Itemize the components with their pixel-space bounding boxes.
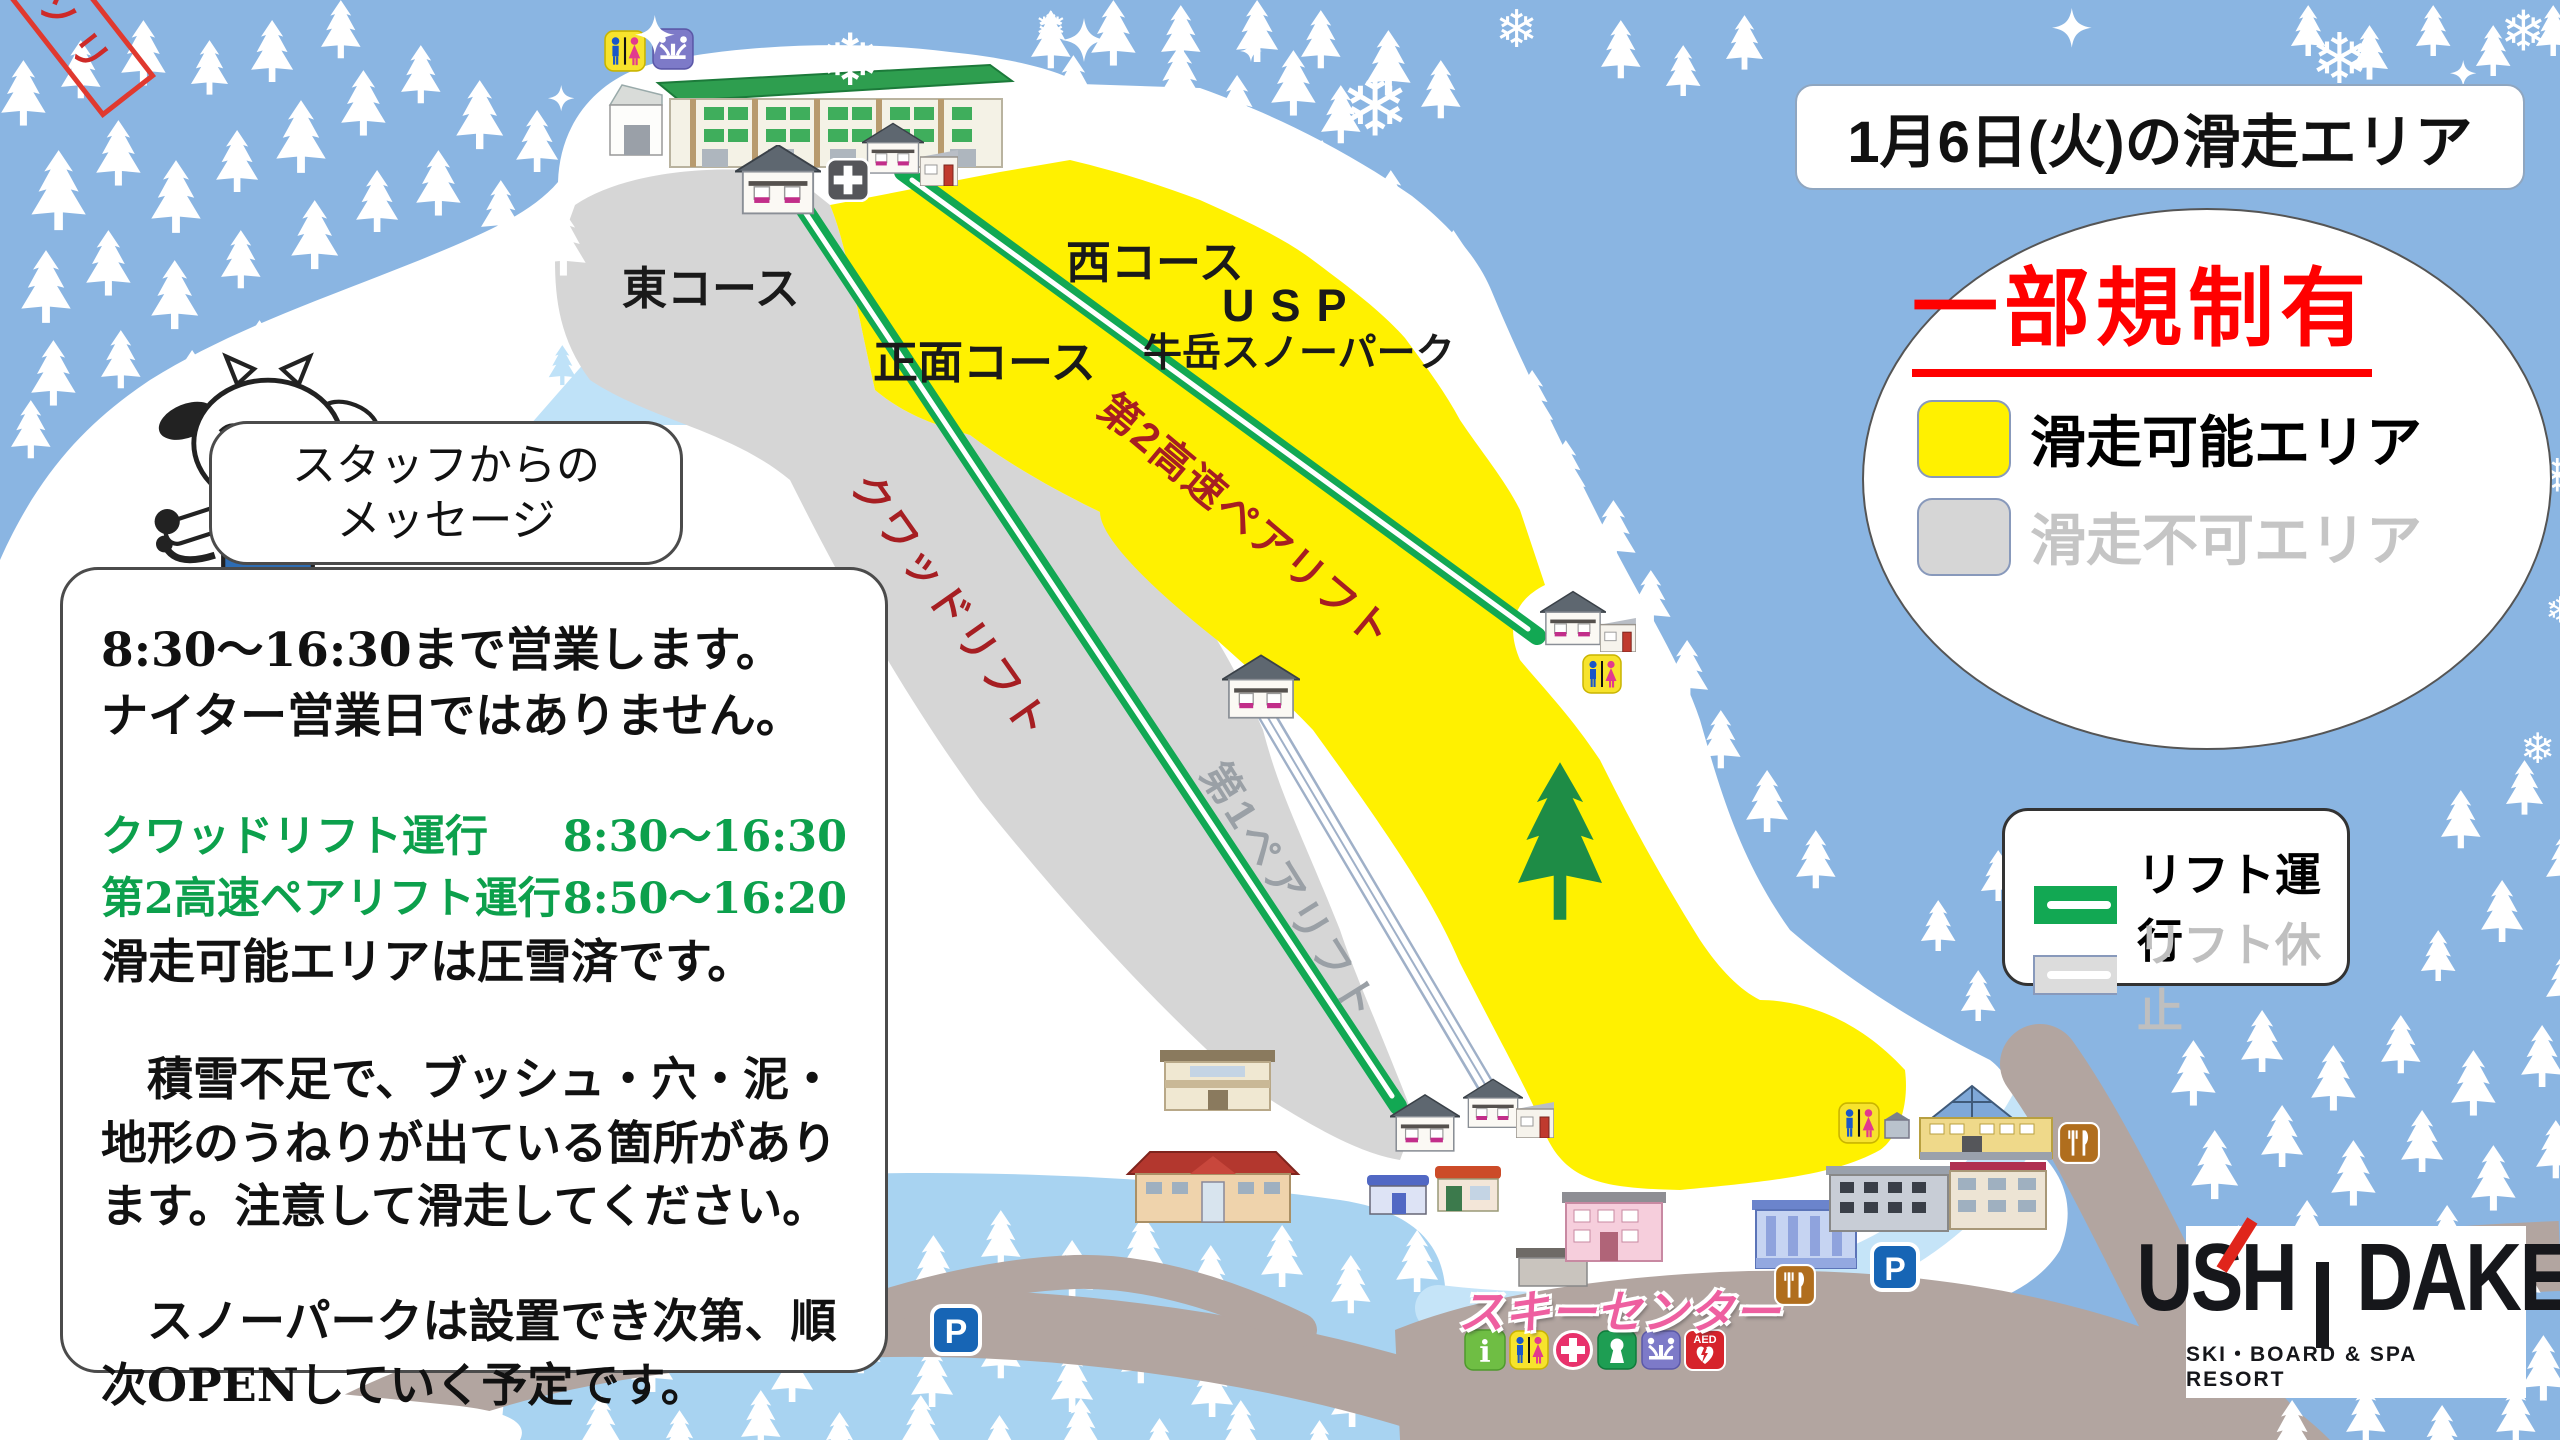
course-label-east: 東コース [622, 252, 800, 317]
resort-logo: USH DAKE SKI・BOARD & SPA RESORT [2186, 1226, 2526, 1398]
svg-text:❄: ❄ [2520, 724, 2555, 773]
staff-bubble-line2: メッセージ [336, 493, 555, 548]
logo-text-right: DAKE [2357, 1232, 2560, 1323]
staff-bubble-line1: スタッフからの [292, 438, 600, 493]
course-label-front: 正面コース [873, 326, 1096, 391]
svg-text:❄: ❄ [2500, 0, 2547, 64]
svg-text:❄: ❄ [1035, 4, 1067, 48]
svg-text:❄: ❄ [2545, 590, 2560, 631]
pair2-hours-name: 第2高速ペアリフト運行 [101, 868, 561, 930]
parking-badge: P [1872, 1244, 1918, 1290]
course-label-west: 西コース [1066, 226, 1244, 291]
lift-stop-label: リフト休止 [2137, 909, 2347, 1041]
hours-line: 8:30〜16:30まで営業します。 [101, 618, 847, 684]
status-heading: 一部規制有 [1912, 238, 2372, 377]
svg-text:P: P [945, 1313, 968, 1351]
restaurant-icon [1775, 1265, 1815, 1305]
logo-i-bar [2316, 1262, 2329, 1348]
status-legend-circle: 一部規制有 滑走可能エリア 滑走不可エリア [1862, 208, 2552, 750]
restaurant-icon [2059, 1123, 2099, 1163]
parking-badge: P [932, 1306, 980, 1354]
lift-legend-box: リフト運行 リフト休止 [2002, 808, 2350, 986]
quad-hours-name: クワッドリフト運行 [101, 806, 488, 868]
snowpark-paragraph: スノーパークは設置でき次第、順次OPENしていく予定です。 [101, 1290, 847, 1417]
closed-area-swatch [1916, 497, 2012, 577]
groomed-note: 滑走可能エリアは圧雪済です。 [101, 930, 847, 996]
closed-area-label: 滑走不可エリア [2030, 496, 2422, 577]
lift-stop-swatch [2033, 955, 2117, 995]
restroom-icon [1583, 655, 1621, 693]
logo-tagline: SKI・BOARD & SPA RESORT [2186, 1338, 2520, 1392]
first-aid-icon [827, 159, 869, 201]
staff-message-box: 8:30〜16:30まで営業します。 ナイター営業日ではありません。 クワッドリ… [60, 567, 888, 1373]
quad-hours-value: 8:30〜16:30 [563, 806, 847, 868]
night-line: ナイター営業日ではありません。 [101, 684, 847, 750]
open-area-swatch [1916, 399, 2012, 479]
title-box: 1月6日(火)の滑走エリア [1795, 84, 2525, 190]
open-area-label: 滑走可能エリア [2030, 398, 2422, 479]
svg-text:❄: ❄ [1495, 0, 1539, 60]
course-label-usp-sub: 牛岳スノーパーク [1143, 322, 1455, 378]
restroom-icon [1839, 1103, 1879, 1143]
ski-resort-map-page: { "title_box": { "text": "1月6日(火)の滑走エリア"… [0, 0, 2560, 1440]
restroom-icon [605, 31, 645, 71]
svg-text:❄: ❄ [1340, 58, 1410, 156]
page-title: 1月6日(火)の滑走エリア [1847, 95, 2472, 179]
svg-text:❄: ❄ [820, 18, 880, 102]
logo-text-left: USH [2136, 1232, 2295, 1323]
pair2-hours-value: 8:50〜16:20 [563, 868, 847, 930]
ski-center-label: スキーセンター [1458, 1276, 1780, 1342]
svg-text:P: P [1884, 1251, 1905, 1287]
caution-paragraph: 積雪不足で、ブッシュ・穴・泥・地形のうねりが出ている箇所があります。注意して滑走… [101, 1048, 847, 1238]
staff-message-bubble: スタッフからの メッセージ [209, 421, 683, 565]
